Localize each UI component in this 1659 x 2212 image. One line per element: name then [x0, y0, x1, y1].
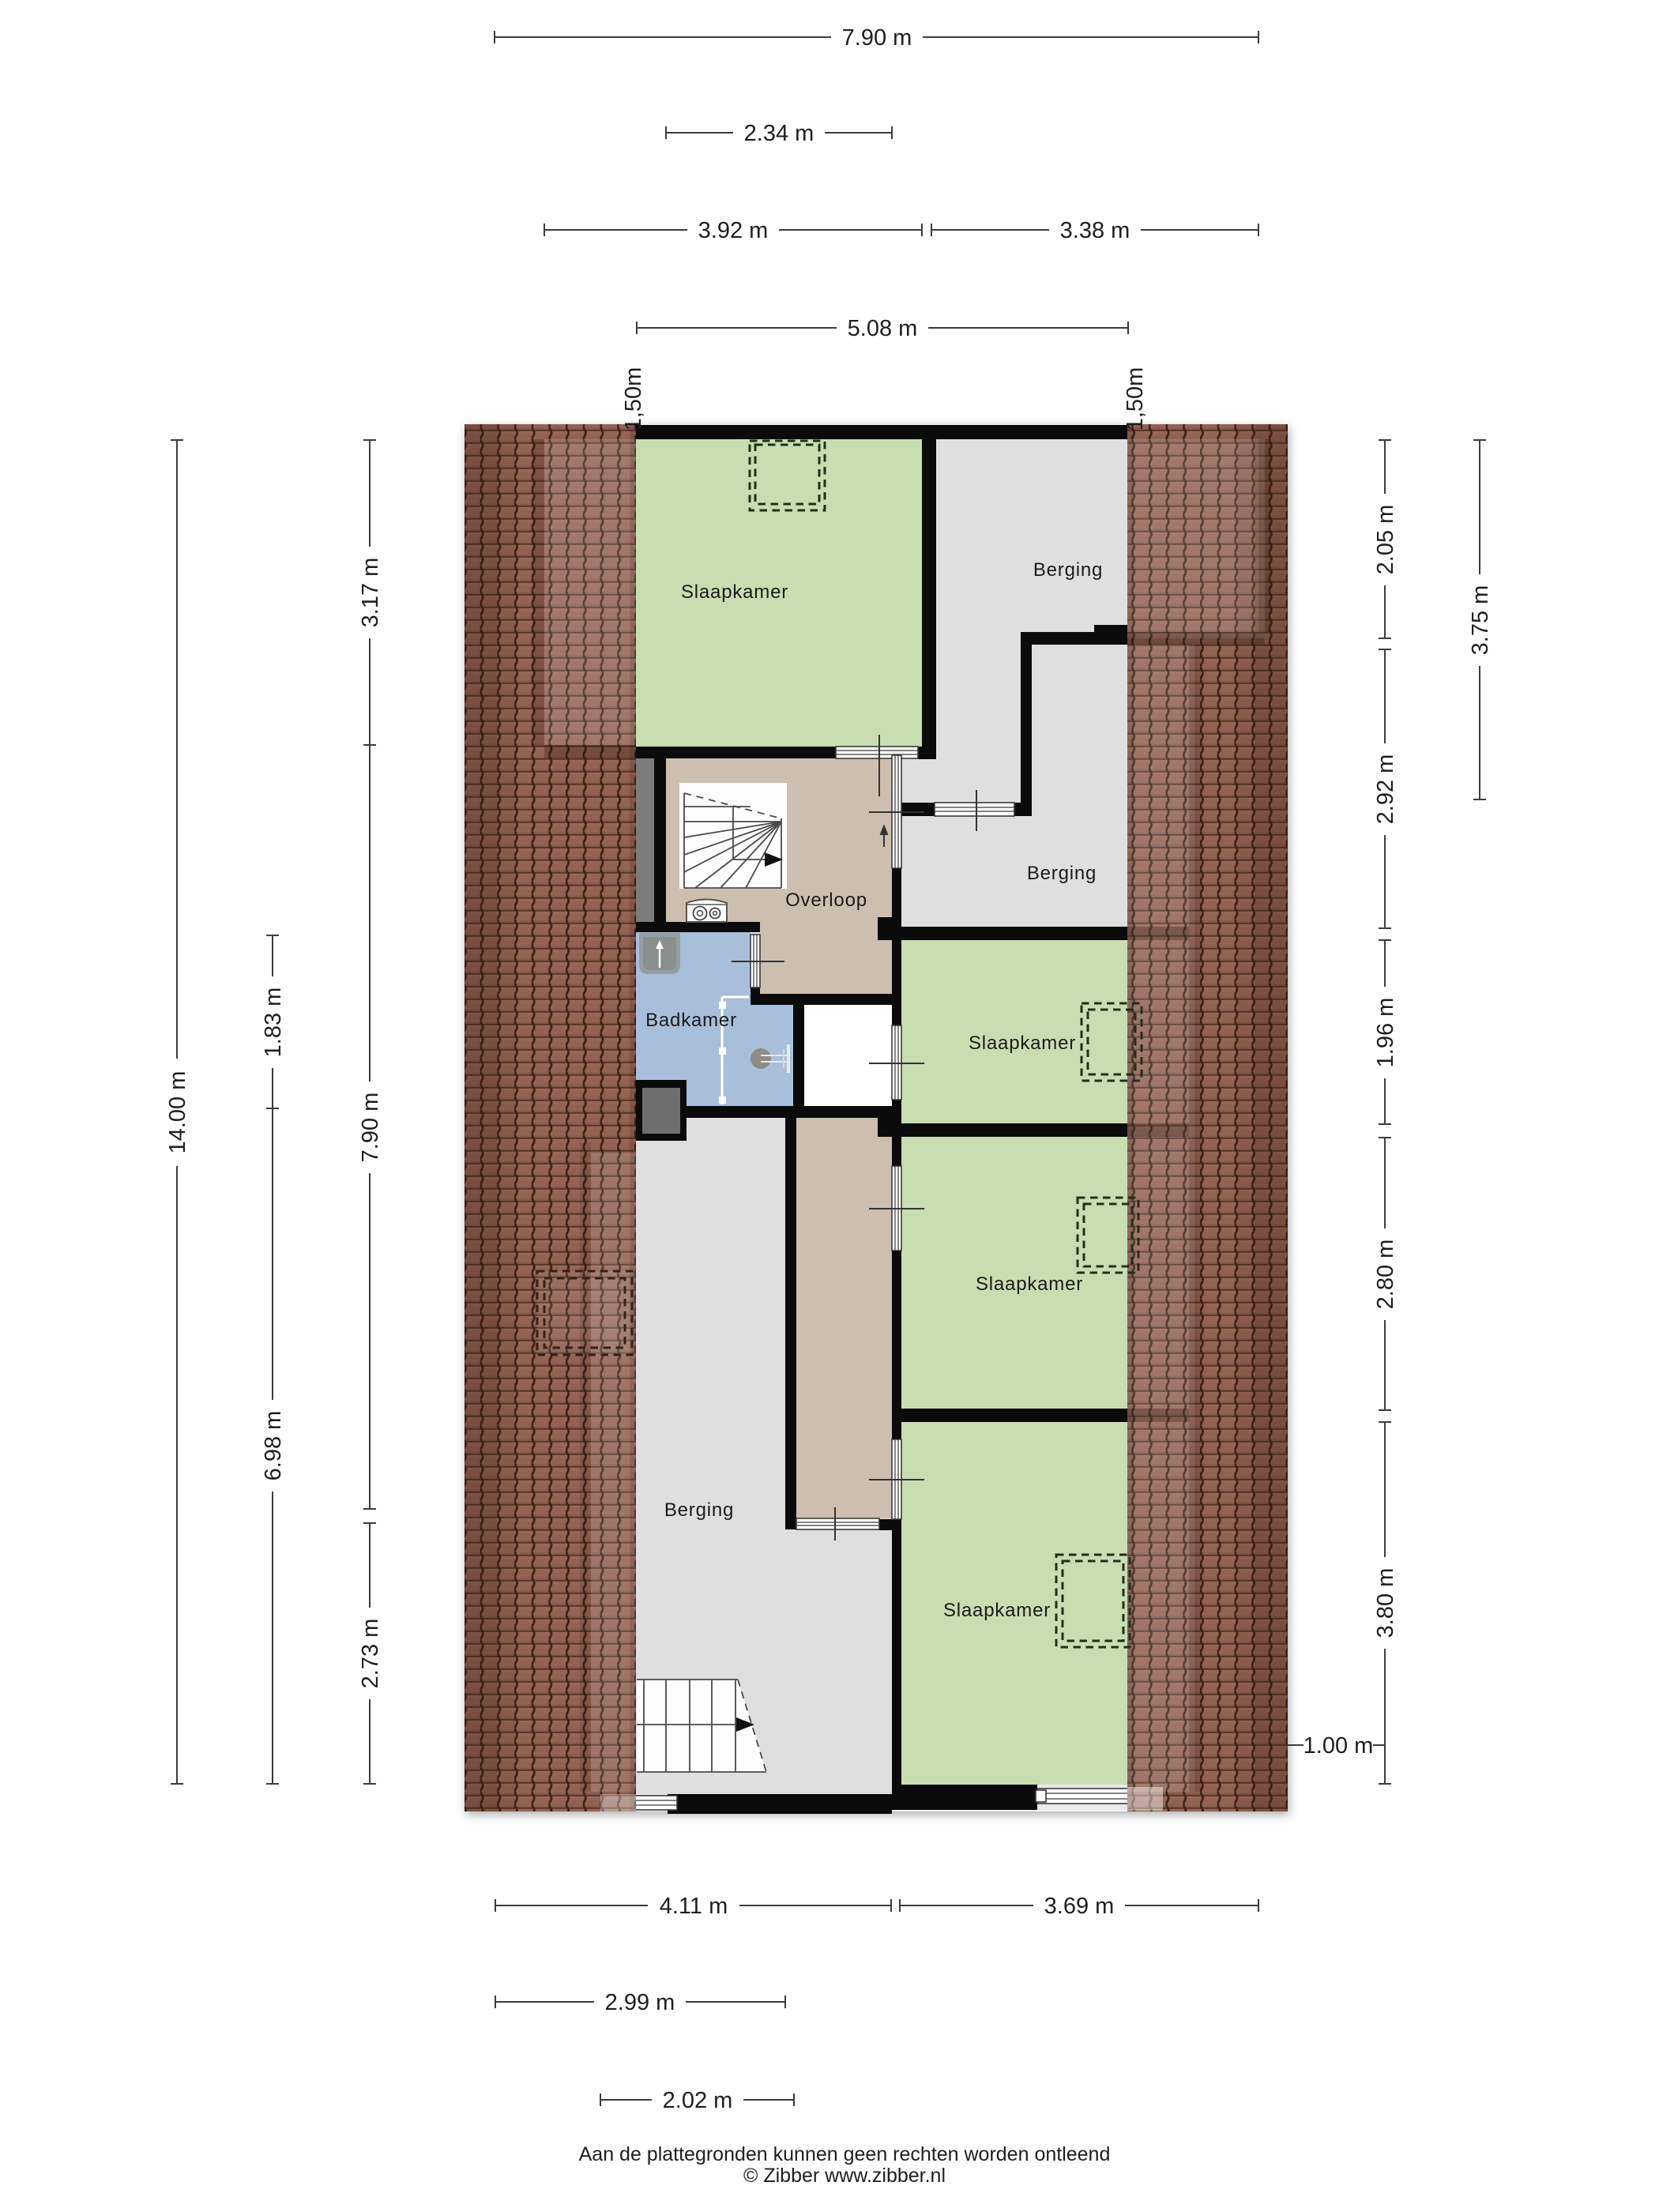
- svg-text:2.05 m: 2.05 m: [1373, 505, 1398, 575]
- svg-text:1.00 m: 1.00 m: [1303, 1733, 1374, 1759]
- svg-text:2.73 m: 2.73 m: [358, 1619, 383, 1689]
- svg-text:14.00 m: 14.00 m: [165, 1071, 190, 1154]
- svg-text:5.08 m: 5.08 m: [848, 316, 918, 341]
- svg-text:2.34 m: 2.34 m: [744, 121, 814, 146]
- svg-text:3.69 m: 3.69 m: [1044, 1894, 1115, 1919]
- svg-text:1,50m: 1,50m: [621, 367, 646, 431]
- svg-text:Slaapkamer: Slaapkamer: [943, 1600, 1051, 1621]
- svg-text:3.38 m: 3.38 m: [1060, 218, 1130, 243]
- svg-text:3.80 m: 3.80 m: [1373, 1568, 1398, 1638]
- svg-text:3.17 m: 3.17 m: [358, 558, 383, 628]
- svg-text:Slaapkamer: Slaapkamer: [976, 1273, 1083, 1295]
- svg-text:3.75 m: 3.75 m: [1468, 585, 1493, 656]
- svg-text:4.11 m: 4.11 m: [660, 1894, 728, 1919]
- svg-text:7.90 m: 7.90 m: [842, 25, 912, 51]
- svg-text:1.83 m: 1.83 m: [261, 987, 286, 1058]
- svg-text:1.96 m: 1.96 m: [1373, 998, 1398, 1068]
- svg-text:Berging: Berging: [1033, 559, 1103, 581]
- svg-text:3.92 m: 3.92 m: [698, 218, 769, 243]
- svg-text:2.99 m: 2.99 m: [605, 1990, 675, 2015]
- svg-text:2.92 m: 2.92 m: [1373, 754, 1398, 825]
- svg-text:Slaapkamer: Slaapkamer: [681, 581, 788, 603]
- svg-text:1,50m: 1,50m: [1123, 367, 1148, 431]
- svg-text:Overloop: Overloop: [785, 890, 867, 911]
- svg-text:2.02 m: 2.02 m: [663, 2088, 733, 2113]
- svg-text:Berging: Berging: [664, 1499, 734, 1521]
- svg-text:6.98 m: 6.98 m: [261, 1411, 286, 1481]
- svg-text:7.90 m: 7.90 m: [358, 1093, 383, 1163]
- svg-text:2.80 m: 2.80 m: [1373, 1240, 1398, 1310]
- svg-text:Badkamer: Badkamer: [645, 1010, 737, 1031]
- svg-text:Berging: Berging: [1027, 863, 1097, 884]
- svg-text:Aan de plattegronden kunnen ge: Aan de plattegronden kunnen geen rechten…: [579, 2143, 1111, 2165]
- svg-text:© Zibber www.zibber.nl: © Zibber www.zibber.nl: [743, 2165, 946, 2187]
- svg-text:Slaapkamer: Slaapkamer: [969, 1033, 1076, 1054]
